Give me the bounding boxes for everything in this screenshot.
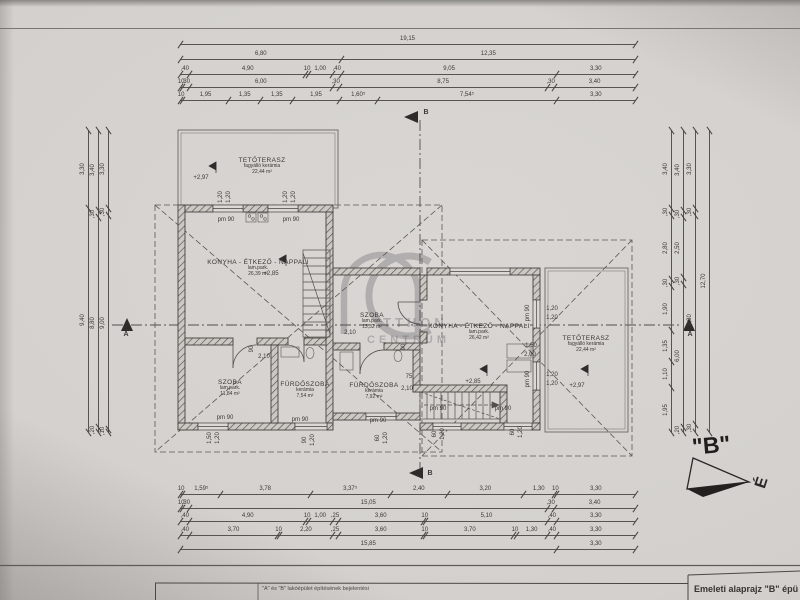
annotation: pm 90 <box>218 217 235 223</box>
dim-value: ,40 <box>548 527 556 533</box>
annotation: 2,10 <box>258 354 270 360</box>
dim-line <box>98 130 99 432</box>
dim-value: 15,05 <box>361 500 376 506</box>
dim-value: ,40 <box>548 513 556 519</box>
dim-value: 3,70 <box>228 527 240 533</box>
annotation: 1,20 <box>291 191 297 203</box>
dim-value: 3,40 <box>663 163 669 175</box>
dim-value: 3,30 <box>100 163 106 175</box>
dim-value: 3,40 <box>90 165 96 177</box>
room-label: TETŐTERASZfagyálló kerámia22,44 m² <box>239 157 286 175</box>
dim-value: 3,30 <box>590 527 602 533</box>
annotation: 2,10 <box>401 386 413 392</box>
room-label: FÜRDŐSZOBAkerámia7,92 m² <box>349 382 398 400</box>
sheet-frame <box>0 29 800 566</box>
dim-value: ,40 <box>181 513 189 519</box>
room-area: 11,84 m² <box>218 392 242 398</box>
dim-value: ,25 <box>331 513 339 519</box>
annotation: 1,20 <box>226 191 232 203</box>
annotation: +2,97 <box>569 383 584 389</box>
annotation: +2,85 <box>465 379 480 385</box>
dim-value: ,40 <box>181 527 189 533</box>
room-area: 26,39 m² <box>207 272 309 278</box>
dim-value: 8,80 <box>687 314 693 326</box>
dim-value: 1,00 <box>314 513 326 519</box>
dim-value: 1,00 <box>314 66 326 72</box>
annotation: 60 <box>510 429 516 436</box>
room-area: 26,42 m² <box>428 336 530 342</box>
dim-value: ,40 <box>333 66 341 72</box>
dim-line <box>180 74 635 75</box>
dim-value: 1,60⁵ <box>351 92 365 98</box>
dim-value: 6,00 <box>255 79 267 85</box>
annotation: A <box>687 332 692 338</box>
annotation: B <box>423 110 428 116</box>
room-label: SZOBAlam.park.13,32 m² <box>360 312 384 330</box>
dim-value: 1,90 <box>663 303 669 315</box>
dim-value: 1,59⁵ <box>194 486 208 492</box>
room-area: 7,54 m² <box>280 394 329 400</box>
dim-line <box>180 494 635 495</box>
dim-value: 1,95 <box>663 404 669 416</box>
dim-value: 15,85 <box>361 541 376 547</box>
annotation: 1,20 <box>518 426 524 438</box>
dim-value: 1,10 <box>663 369 669 381</box>
annotation: 90 <box>302 437 308 444</box>
annotation: B <box>427 471 432 477</box>
annotation: 60 <box>375 435 381 442</box>
room-label: KONYHA - ÉTKEZŐ - NAPPALIlam.park.26,42 … <box>428 323 530 341</box>
dim-value: 1,30 <box>533 486 545 492</box>
annotation: 1,20 <box>218 191 224 203</box>
dim-value: 4,90 <box>242 66 254 72</box>
dim-value: 3,30 <box>590 541 602 547</box>
dim-value: 12,70 <box>701 273 707 288</box>
dim-value: 3,30 <box>590 513 602 519</box>
dim-line <box>180 521 635 522</box>
title-block-drawing-title: Emeleti alaprajz "B" épü <box>694 584 798 594</box>
dim-value: 12,35 <box>481 51 496 57</box>
dim-value: 1,95 <box>200 92 212 98</box>
room-area: 22,44 m² <box>563 348 610 354</box>
annotation: 2,10 <box>344 330 356 336</box>
dim-value: 2,80 <box>663 242 669 254</box>
annotation: 75 <box>406 374 413 380</box>
dim-value: 3,78 <box>259 486 271 492</box>
dim-value: 6,80 <box>255 51 267 57</box>
annotation: 1,20 <box>215 432 221 444</box>
dim-value: ,30 <box>182 79 190 85</box>
dim-value: 4,90 <box>242 513 254 519</box>
dim-value: 3,20 <box>479 486 491 492</box>
annotation: +2,97 <box>193 175 208 181</box>
room-area: 7,92 m² <box>349 395 398 401</box>
dim-value: 3,37⁵ <box>343 486 357 492</box>
dim-value: ,40 <box>181 66 189 72</box>
dim-line <box>180 549 635 550</box>
annotation: pm 90 <box>525 305 531 322</box>
annotation: 1,50 <box>207 432 213 444</box>
dim-value: ,30 <box>331 79 339 85</box>
room-label: KONYHA - ÉTKEZŐ - NAPPALIlam.park.26,39 … <box>207 259 309 277</box>
dim-value: 3,40 <box>589 79 601 85</box>
annotation: 90 <box>401 344 407 351</box>
dim-value: ,30 <box>546 500 554 506</box>
annotation: pm 90 <box>370 418 387 424</box>
annotation: pm 90 <box>217 415 234 421</box>
dim-value: ,25 <box>331 527 339 533</box>
dim-value: 3,30 <box>80 163 86 175</box>
dim-value: 8,75 <box>437 79 449 85</box>
dim-value: 3,40 <box>589 500 601 506</box>
dim-value: 7,54⁵ <box>460 92 474 98</box>
dim-line <box>180 508 635 509</box>
dim-value: 1,35 <box>663 340 669 352</box>
annotation: 90 <box>249 346 255 353</box>
room-area: 13,32 m² <box>360 325 384 331</box>
annotation: 1,20 <box>310 434 316 446</box>
dim-value: 3,30 <box>590 486 602 492</box>
room-label: FÜRDŐSZOBAkerámia7,54 m² <box>280 381 329 399</box>
dim-value: 3,60 <box>375 513 387 519</box>
dim-value: 6,00 <box>675 350 681 362</box>
dim-value: 19,15 <box>400 36 415 42</box>
dim-value: 3,30 <box>590 92 602 98</box>
annotation: 1,20 <box>546 372 558 378</box>
annotation: 1,20 <box>546 306 558 312</box>
dim-value: 3,30 <box>590 66 602 72</box>
dim-value: 2,50 <box>675 242 681 254</box>
building-label: "B" <box>691 430 732 460</box>
dim-value: 1,30 <box>526 527 538 533</box>
dim-line <box>180 535 635 536</box>
annotation: 1,20 <box>283 191 289 203</box>
annotation: 60 <box>432 431 438 438</box>
annotation: 1,20 <box>546 315 558 321</box>
dim-value: 9,00 <box>100 317 106 329</box>
dim-line <box>88 130 89 432</box>
annotation: 2,00 <box>524 352 536 358</box>
dim-line <box>695 130 696 432</box>
dim-line <box>180 100 635 101</box>
annotation: pm 90 <box>292 417 309 423</box>
dim-value: 5,10 <box>481 513 493 519</box>
annotation: 1,50 <box>525 343 537 349</box>
dim-value: 3,70 <box>464 527 476 533</box>
annotation: pm 90 <box>430 406 447 412</box>
room-area: 22,44 m² <box>239 170 286 176</box>
title-block-subject: "A" és "B" lakóépület építésének bejelen… <box>262 586 369 592</box>
dim-value: 9,40 <box>80 314 86 326</box>
dim-value: 1,35 <box>271 92 283 98</box>
dim-line <box>180 59 635 60</box>
dim-value: ,30 <box>182 500 190 506</box>
dim-line <box>709 130 710 432</box>
annotation: A <box>123 332 128 338</box>
floor-plan-drawing <box>0 0 800 600</box>
annotation: pm 90 <box>283 217 300 223</box>
dim-value: 3,60 <box>375 527 387 533</box>
dim-value: 3,30 <box>687 163 693 175</box>
north-arrow <box>687 458 749 497</box>
dim-value: 2,20 <box>300 527 312 533</box>
dim-value: 9,05 <box>443 66 455 72</box>
dim-value: 3,40 <box>675 165 681 177</box>
annotation: 1,20 <box>440 428 446 440</box>
annotation: pm 90 <box>525 371 531 388</box>
annotation: 1,20 <box>383 432 389 444</box>
dim-line <box>180 87 635 88</box>
annotation: pm 90 <box>495 406 512 412</box>
dim-line <box>180 44 635 45</box>
dim-value: 1,95 <box>310 92 322 98</box>
room-label: TETŐTERASZfagyálló kerámia22,44 m² <box>563 335 610 353</box>
scanned-floorplan-page: 19,156,8012,35,404,90101,00,409,053,3010… <box>0 0 800 600</box>
dim-line <box>683 130 684 432</box>
dim-value: ,30 <box>546 79 554 85</box>
room-label: SZOBAlam.park.11,84 m² <box>218 379 242 397</box>
dim-value: 1,35 <box>239 92 251 98</box>
dim-line <box>108 130 109 432</box>
dim-value: 8,80 <box>90 317 96 329</box>
dim-value: 2,40 <box>413 486 425 492</box>
annotation: 1,20 <box>546 381 558 387</box>
